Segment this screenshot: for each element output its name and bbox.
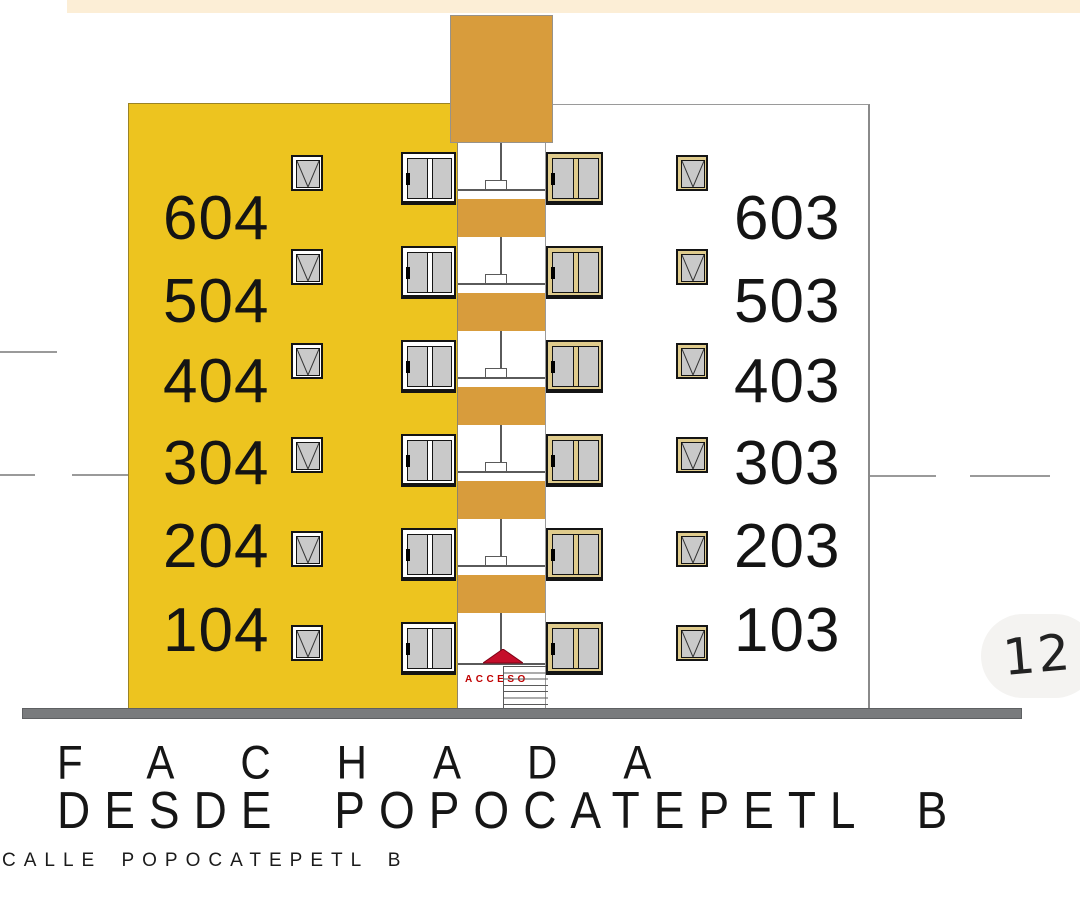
awning-window xyxy=(676,625,708,661)
window-handle-icon xyxy=(406,361,410,373)
sliding-window xyxy=(546,152,603,205)
unit-label-104: 104 xyxy=(163,600,269,662)
tower-balcony-band xyxy=(458,143,545,199)
tower-balcony-band xyxy=(458,519,545,575)
awning-window xyxy=(291,437,323,473)
window-glass xyxy=(681,160,705,188)
tower-ground-band: ACCESO xyxy=(458,613,545,708)
unit-label-103: 103 xyxy=(734,600,840,662)
window-handle-icon xyxy=(406,267,410,279)
window-glass xyxy=(296,348,320,376)
unit-label-204: 204 xyxy=(163,516,269,578)
window-handle-icon xyxy=(406,455,410,467)
sliding-window xyxy=(546,434,603,487)
unit-label-504: 504 xyxy=(163,271,269,333)
unit-label-403: 403 xyxy=(734,351,840,413)
sliding-window xyxy=(546,246,603,299)
sliding-window xyxy=(401,340,456,393)
level-line xyxy=(864,475,936,477)
window-glass xyxy=(552,158,599,199)
stair-tower: ACCESO xyxy=(457,103,546,708)
window-handle-icon xyxy=(551,643,555,655)
street-label: CALLE POPOCATEPETL B xyxy=(2,850,408,872)
window-handle-icon xyxy=(551,173,555,185)
awning-window xyxy=(676,155,708,191)
awning-window xyxy=(291,155,323,191)
window-glass xyxy=(296,160,320,188)
window-glass xyxy=(296,254,320,282)
tower-roof-block xyxy=(450,15,553,143)
awning-window xyxy=(676,249,708,285)
sliding-window xyxy=(401,434,456,487)
entry-divider-line xyxy=(500,613,502,651)
page-number: 12 xyxy=(1001,623,1075,687)
window-glass xyxy=(681,442,705,470)
awning-window xyxy=(291,531,323,567)
unit-label-404: 404 xyxy=(163,351,269,413)
awning-window xyxy=(291,343,323,379)
sliding-window xyxy=(546,622,603,675)
awning-window xyxy=(676,343,708,379)
window-handle-icon xyxy=(406,173,410,185)
unit-label-604: 604 xyxy=(163,188,269,250)
window-glass xyxy=(681,254,705,282)
window-glass xyxy=(407,158,452,199)
unit-label-303: 303 xyxy=(734,433,840,495)
window-glass xyxy=(552,252,599,293)
balcony-railing xyxy=(458,471,545,473)
sliding-window xyxy=(401,528,456,581)
sliding-window xyxy=(401,622,456,675)
drawing-title-line2: DESDE POPOCATEPETL B xyxy=(57,780,961,840)
window-handle-icon xyxy=(551,361,555,373)
level-line xyxy=(0,351,57,353)
window-glass xyxy=(407,534,452,575)
window-handle-icon xyxy=(551,455,555,467)
window-glass xyxy=(296,630,320,658)
elevation-drawing: ACCESO 604603504503404403304303204203104… xyxy=(0,0,1080,912)
sliding-window xyxy=(546,528,603,581)
unit-label-603: 603 xyxy=(734,188,840,250)
window-glass xyxy=(296,536,320,564)
window-glass xyxy=(296,442,320,470)
unit-label-304: 304 xyxy=(163,433,269,495)
unit-label-203: 203 xyxy=(734,516,840,578)
access-stairs xyxy=(503,666,548,708)
level-line xyxy=(970,475,1050,477)
balcony-railing xyxy=(458,189,545,191)
unit-label-503: 503 xyxy=(734,271,840,333)
window-glass xyxy=(552,628,599,669)
top-strip xyxy=(67,0,1080,13)
page-number-badge: 12 xyxy=(981,614,1080,698)
sliding-window xyxy=(401,152,456,205)
level-line xyxy=(0,474,35,476)
tower-balcony-band xyxy=(458,237,545,293)
balcony-railing xyxy=(458,377,545,379)
tower-balcony-band xyxy=(458,425,545,481)
balcony-railing xyxy=(458,565,545,567)
sliding-window xyxy=(401,246,456,299)
awning-window xyxy=(291,249,323,285)
window-handle-icon xyxy=(406,549,410,561)
window-glass xyxy=(552,346,599,387)
window-handle-icon xyxy=(406,643,410,655)
window-glass xyxy=(552,534,599,575)
awning-window xyxy=(676,531,708,567)
window-glass xyxy=(681,348,705,376)
window-glass xyxy=(552,440,599,481)
window-glass xyxy=(407,252,452,293)
access-canopy-icon xyxy=(483,649,523,664)
ground-line xyxy=(22,708,1022,719)
tower-balcony-band xyxy=(458,331,545,387)
window-glass xyxy=(407,440,452,481)
window-glass xyxy=(407,628,452,669)
awning-window xyxy=(291,625,323,661)
window-handle-icon xyxy=(551,549,555,561)
sliding-window xyxy=(546,340,603,393)
awning-window xyxy=(676,437,708,473)
window-glass xyxy=(681,536,705,564)
balcony-railing xyxy=(458,283,545,285)
window-glass xyxy=(681,630,705,658)
window-handle-icon xyxy=(551,267,555,279)
window-glass xyxy=(407,346,452,387)
